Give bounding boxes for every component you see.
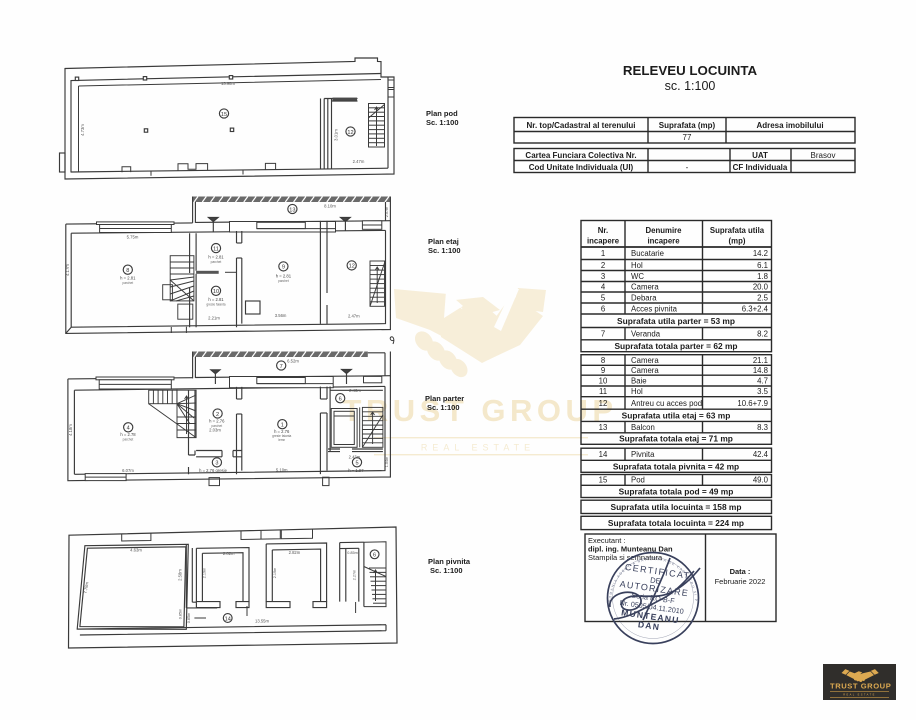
svg-text:0.85m: 0.85m <box>347 551 358 555</box>
svg-text:Adresa imobilului: Adresa imobilului <box>756 121 823 130</box>
svg-text:2.19m: 2.19m <box>203 568 207 579</box>
svg-text:h = 2.76: h = 2.76 <box>274 429 290 434</box>
svg-text:UAT: UAT <box>752 151 768 160</box>
svg-text:Acces pivnita: Acces pivnita <box>631 304 678 313</box>
svg-text:5: 5 <box>601 293 606 302</box>
svg-text:8: 8 <box>601 356 605 365</box>
svg-text:Suprafata totala locuinta = 22: Suprafata totala locuinta = 224 mp <box>608 518 744 528</box>
svg-text:5.10m: 5.10m <box>276 468 288 473</box>
svg-text:Plan pivnita: Plan pivnita <box>428 557 471 566</box>
svg-text:8.3: 8.3 <box>757 423 768 432</box>
svg-text:15: 15 <box>221 112 227 118</box>
svg-text:Pivnita: Pivnita <box>631 450 655 459</box>
svg-text:lemn: lemn <box>278 438 285 442</box>
svg-text:10: 10 <box>599 376 608 385</box>
svg-text:h = 2.78: h = 2.78 <box>120 432 136 437</box>
svg-text:2.43m: 2.43m <box>349 388 361 393</box>
svg-text:12: 12 <box>347 130 353 136</box>
svg-text:Pod: Pod <box>631 476 645 485</box>
svg-text:2.82m: 2.82m <box>289 550 301 555</box>
svg-text:incapere: incapere <box>587 237 620 246</box>
svg-text:13.98m: 13.98m <box>221 81 235 86</box>
svg-text:14: 14 <box>225 616 231 622</box>
svg-text:77: 77 <box>683 133 692 142</box>
svg-text:TRUST GROUP: TRUST GROUP <box>830 682 891 691</box>
svg-text:Nr.: Nr. <box>598 226 608 235</box>
svg-text:8.2: 8.2 <box>757 329 768 338</box>
svg-text:sc. 1:100: sc. 1:100 <box>665 79 716 93</box>
svg-text:Suprafata totala pivnita = 42: Suprafata totala pivnita = 42 mp <box>613 461 739 471</box>
svg-text:Denumire: Denumire <box>646 226 683 235</box>
svg-text:49.0: 49.0 <box>753 476 769 485</box>
svg-text:h = 2.81: h = 2.81 <box>208 255 224 260</box>
svg-text:Cartea Funciara Colectiva Nr.: Cartea Funciara Colectiva Nr. <box>525 151 636 160</box>
svg-text:1.04m: 1.04m <box>385 457 389 468</box>
svg-text:6: 6 <box>373 553 376 559</box>
svg-text:Bucatarie: Bucatarie <box>631 249 664 258</box>
svg-text:11: 11 <box>599 387 607 396</box>
svg-text:11: 11 <box>213 246 219 252</box>
svg-text:2.5: 2.5 <box>757 293 769 302</box>
svg-text:13: 13 <box>289 207 295 213</box>
svg-text:2.58m: 2.58m <box>178 569 183 581</box>
svg-text:CF Individuala: CF Individuala <box>733 163 788 172</box>
svg-text:Sc. 1:100: Sc. 1:100 <box>428 246 461 255</box>
svg-text:Camera: Camera <box>631 366 659 375</box>
svg-text:2: 2 <box>216 412 219 418</box>
svg-text:14: 14 <box>599 450 608 459</box>
svg-text:Suprafata utila parter = 53 mp: Suprafata utila parter = 53 mp <box>617 316 735 326</box>
svg-text:RELEVEU LOCUINTA: RELEVEU LOCUINTA <box>623 63 758 78</box>
svg-text:Suprafata utila etaj = 63 mp: Suprafata utila etaj = 63 mp <box>622 410 731 420</box>
svg-text:8: 8 <box>126 268 129 274</box>
svg-text:Balcon: Balcon <box>631 423 655 432</box>
svg-text:parchet: parchet <box>211 260 222 264</box>
svg-text:Hol: Hol <box>631 387 643 396</box>
svg-text:Brasov: Brasov <box>811 151 836 160</box>
svg-text:21.1: 21.1 <box>753 356 768 365</box>
svg-text:REAL ESTATE: REAL ESTATE <box>421 443 535 453</box>
svg-text:Suprafata utila locuinta = 158: Suprafata utila locuinta = 158 mp <box>610 502 741 512</box>
svg-text:3.56m: 3.56m <box>275 313 287 318</box>
svg-text:-: - <box>686 163 689 172</box>
svg-text:parchet: parchet <box>122 281 133 285</box>
svg-text:6.52m: 6.52m <box>287 359 299 364</box>
svg-text:2.19m: 2.19m <box>273 568 277 579</box>
svg-text:2.27m: 2.27m <box>352 570 356 581</box>
svg-text:0.85m: 0.85m <box>179 609 183 620</box>
svg-text:4.7: 4.7 <box>757 376 768 385</box>
svg-text:TRUST GROUP: TRUST GROUP <box>342 393 617 428</box>
svg-text:4: 4 <box>601 283 606 292</box>
svg-text:Nr. top/Cadastral al terenului: Nr. top/Cadastral al terenului <box>527 121 636 130</box>
svg-text:4.18m: 4.18m <box>68 424 73 436</box>
svg-text:6: 6 <box>339 397 342 403</box>
svg-text:WC: WC <box>631 272 644 281</box>
svg-text:Plan parter: Plan parter <box>425 394 464 403</box>
svg-text:Sc. 1:100: Sc. 1:100 <box>427 403 460 412</box>
svg-text:2: 2 <box>601 261 605 270</box>
svg-text:12: 12 <box>349 264 355 270</box>
svg-text:2.47m: 2.47m <box>348 314 360 319</box>
svg-text:Camera: Camera <box>631 283 659 292</box>
svg-text:parchet: parchet <box>278 279 289 283</box>
svg-text:3: 3 <box>601 272 605 281</box>
svg-text:20.0: 20.0 <box>753 283 769 292</box>
svg-text:Plan pod: Plan pod <box>426 109 458 118</box>
svg-text:10: 10 <box>213 289 219 295</box>
svg-text:parchet: parchet <box>123 437 134 441</box>
svg-text:6.3+2.4: 6.3+2.4 <box>742 304 769 313</box>
svg-text:Plan etaj: Plan etaj <box>428 237 459 246</box>
svg-text:Suprafata totala etaj = 71 mp: Suprafata totala etaj = 71 mp <box>619 434 733 444</box>
svg-text:1: 1 <box>281 423 284 429</box>
svg-text:2.43m: 2.43m <box>349 454 361 459</box>
svg-text:8.10m: 8.10m <box>324 204 336 209</box>
svg-text:9: 9 <box>601 366 605 375</box>
svg-text:13.55m: 13.55m <box>255 619 269 624</box>
svg-text:9: 9 <box>282 265 285 271</box>
svg-text:Suprafata (mp): Suprafata (mp) <box>659 121 716 130</box>
svg-text:6.07m: 6.07m <box>122 468 134 473</box>
svg-text:2.47m: 2.47m <box>353 159 365 164</box>
svg-text:Antreu cu acces pod: Antreu cu acces pod <box>631 399 702 408</box>
svg-text:Camera: Camera <box>631 356 659 365</box>
svg-text:5: 5 <box>355 461 358 467</box>
svg-text:42.4: 42.4 <box>753 450 769 459</box>
svg-text:Baie: Baie <box>631 376 647 385</box>
svg-text:14.8: 14.8 <box>753 366 768 375</box>
svg-text:gresie faianta: gresie faianta <box>206 302 225 306</box>
svg-text:13: 13 <box>599 423 608 432</box>
svg-text:14.2: 14.2 <box>753 249 768 258</box>
svg-text:7: 7 <box>601 329 605 338</box>
svg-text:12: 12 <box>599 399 608 408</box>
svg-text:incapere: incapere <box>647 237 680 246</box>
svg-text:Cod Unitate Individuala (UI): Cod Unitate Individuala (UI) <box>529 163 634 172</box>
svg-text:1.8: 1.8 <box>757 272 768 281</box>
svg-text:h = 2.76: h = 2.76 <box>209 419 225 424</box>
svg-text:Hol: Hol <box>631 261 643 270</box>
svg-text:2.82m: 2.82m <box>223 551 235 556</box>
svg-text:0.85m: 0.85m <box>187 613 191 624</box>
svg-text:7: 7 <box>280 364 283 370</box>
svg-text:4.17m: 4.17m <box>65 264 70 276</box>
svg-text:2.21m: 2.21m <box>208 316 220 321</box>
svg-text:(mp): (mp) <box>729 237 746 246</box>
svg-text:h = 1.97: h = 1.97 <box>348 468 364 473</box>
svg-text:Suprafata utila: Suprafata utila <box>710 226 765 235</box>
svg-text:15: 15 <box>599 476 608 485</box>
svg-text:2.03m: 2.03m <box>209 428 221 433</box>
svg-text:h = 2.81: h = 2.81 <box>208 297 224 302</box>
svg-text:3: 3 <box>215 461 218 467</box>
svg-text:Sc. 1:100: Sc. 1:100 <box>426 118 459 127</box>
svg-text:Data :: Data : <box>730 567 751 576</box>
svg-text:h = 2.81: h = 2.81 <box>276 274 292 279</box>
svg-text:REAL ESTATE: REAL ESTATE <box>843 693 876 697</box>
svg-text:Suprafata totala pod = 49 mp: Suprafata totala pod = 49 mp <box>619 486 734 496</box>
svg-text:h = 2.76 gresie: h = 2.76 gresie <box>199 468 227 473</box>
svg-text:Suprafata totala parter = 62 m: Suprafata totala parter = 62 mp <box>614 341 737 351</box>
svg-text:Veranda: Veranda <box>631 329 661 338</box>
svg-text:1: 1 <box>601 249 605 258</box>
svg-text:6: 6 <box>601 304 605 313</box>
svg-text:Sc. 1:100: Sc. 1:100 <box>430 566 463 575</box>
svg-text:2.07m: 2.07m <box>385 207 389 218</box>
svg-text:Debara: Debara <box>631 293 657 302</box>
svg-text:4.73m: 4.73m <box>80 124 85 136</box>
svg-text:4.63m: 4.63m <box>130 548 142 553</box>
svg-text:3.01m: 3.01m <box>334 129 339 141</box>
svg-text:10.6+7.9: 10.6+7.9 <box>737 399 768 408</box>
svg-text:Februarie 2022: Februarie 2022 <box>715 577 766 586</box>
svg-text:3.5: 3.5 <box>757 387 769 396</box>
svg-text:4: 4 <box>127 426 130 432</box>
svg-text:5.75m: 5.75m <box>127 235 139 240</box>
svg-text:h = 2.81: h = 2.81 <box>120 276 136 281</box>
svg-text:6.1: 6.1 <box>757 261 768 270</box>
